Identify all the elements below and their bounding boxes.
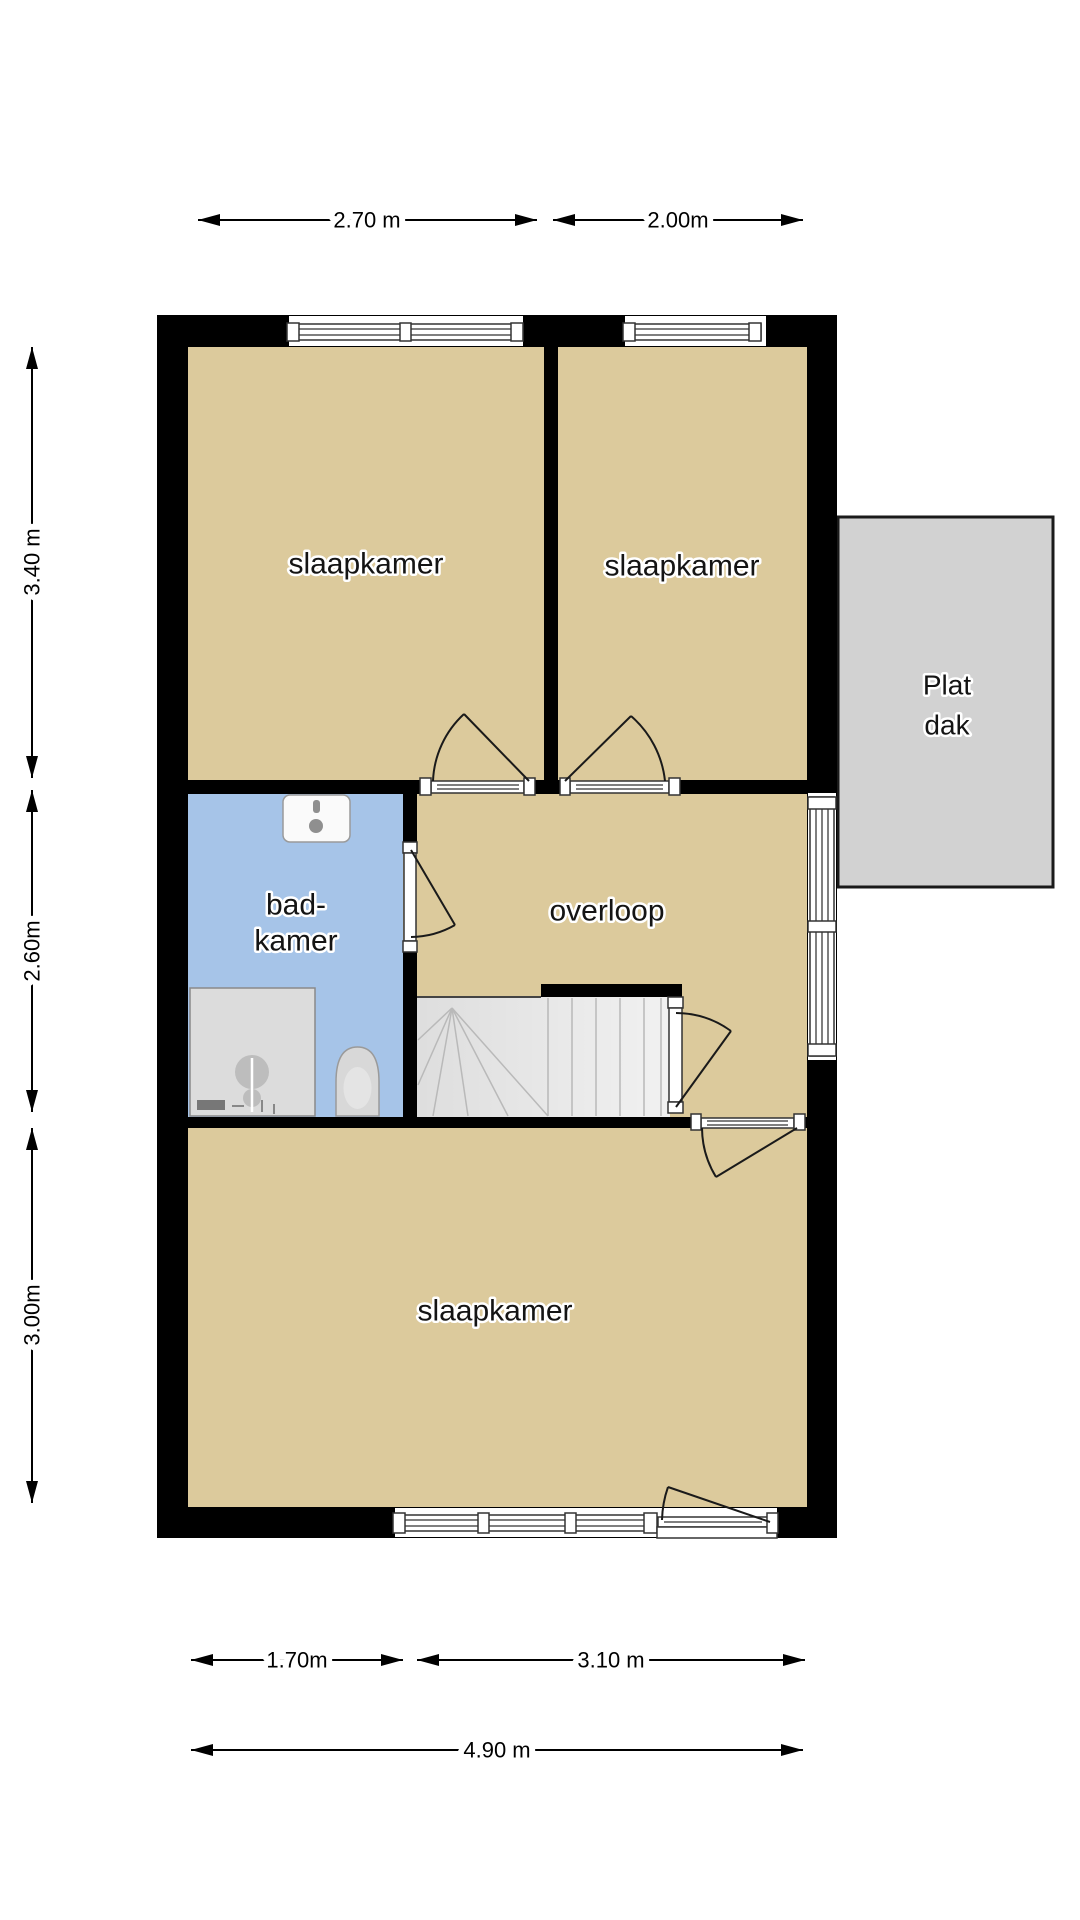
flat-roof-label-line2: dak bbox=[924, 710, 970, 741]
door-post bbox=[767, 1513, 778, 1533]
door-threshold bbox=[570, 781, 669, 793]
door-post bbox=[403, 941, 417, 952]
wall-segment bbox=[544, 347, 558, 780]
window-post bbox=[749, 323, 761, 341]
wall-segment bbox=[188, 780, 421, 794]
wall-segment bbox=[534, 780, 561, 794]
dimension-label: 2.00m bbox=[647, 208, 708, 233]
door-leaf-closed bbox=[669, 1008, 682, 1102]
dimension-label: 1.70m bbox=[266, 1648, 327, 1673]
door-post bbox=[420, 778, 431, 795]
room-label-bedroom-top-left: slaapkamer bbox=[288, 548, 443, 581]
wall-segment bbox=[403, 952, 417, 1117]
shower-controls-icon bbox=[197, 1100, 225, 1110]
floor-plan: Plat dak bbox=[0, 0, 1080, 1920]
dimension-label: 3.00m bbox=[20, 1284, 45, 1345]
room-label-bathroom-line1: bad- bbox=[266, 889, 326, 922]
dimension-label: 4.90 m bbox=[463, 1738, 530, 1763]
window-post bbox=[808, 797, 836, 809]
wall-segment bbox=[188, 1117, 692, 1128]
window-post bbox=[623, 323, 635, 341]
stairs bbox=[417, 997, 670, 1117]
room-label-bedroom-bottom: slaapkamer bbox=[417, 1295, 572, 1328]
flat-roof: Plat dak bbox=[838, 517, 1053, 887]
flat-roof-label-line1: Plat bbox=[923, 670, 971, 701]
flat-roof-outline bbox=[838, 517, 1053, 887]
wall-segment bbox=[403, 794, 417, 842]
wall-segment bbox=[541, 984, 682, 997]
door-post bbox=[794, 1114, 805, 1130]
window-frame bbox=[625, 324, 761, 340]
window-post bbox=[808, 1044, 836, 1056]
door-exterior-sill bbox=[657, 1527, 777, 1538]
door-threshold bbox=[431, 781, 524, 793]
room-label-landing: overloop bbox=[549, 895, 664, 928]
window-post bbox=[511, 323, 523, 341]
door-post bbox=[668, 997, 683, 1008]
door-post bbox=[403, 842, 417, 853]
dimension-label: 3.10 m bbox=[577, 1648, 644, 1673]
dimension-label: 3.40 m bbox=[20, 528, 45, 595]
room-label-bathroom-line2: kamer bbox=[254, 925, 337, 958]
window-post bbox=[393, 1513, 405, 1533]
window-frame bbox=[395, 1515, 656, 1531]
toilet-bowl-icon bbox=[344, 1067, 372, 1109]
window-post bbox=[644, 1513, 657, 1533]
window-post bbox=[565, 1513, 576, 1533]
wall-segment bbox=[157, 315, 188, 1538]
room-label-bedroom-top-right: slaapkamer bbox=[604, 550, 759, 583]
door-post bbox=[691, 1114, 701, 1130]
dimension-label: 2.70 m bbox=[333, 208, 400, 233]
window-post bbox=[478, 1513, 489, 1533]
door-leaf-closed bbox=[404, 853, 416, 941]
window-post bbox=[400, 323, 411, 341]
wall-segment bbox=[680, 780, 807, 794]
washbasin-drain-icon bbox=[309, 819, 323, 833]
washbasin-faucet-icon bbox=[313, 800, 320, 813]
door-post bbox=[524, 778, 535, 795]
dimension-label: 2.60m bbox=[20, 920, 45, 981]
window-post bbox=[287, 323, 299, 341]
door-post bbox=[668, 1102, 683, 1113]
door-post bbox=[669, 778, 680, 795]
window-post bbox=[808, 921, 836, 932]
door-threshold bbox=[701, 1118, 794, 1128]
